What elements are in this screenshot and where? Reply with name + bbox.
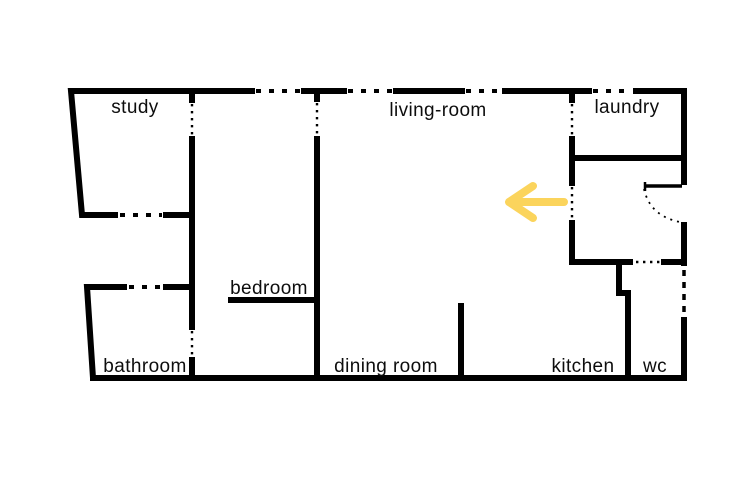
wall-entry-left-low <box>572 220 633 262</box>
room-label-bathroom: bathroom <box>103 356 186 377</box>
room-label-study: study <box>111 97 159 118</box>
entry-door-swing-arc <box>644 189 680 222</box>
room-label-living-room: living-room <box>389 100 486 121</box>
room-label-bedroom: bedroom <box>230 278 308 299</box>
door-dotted-openings <box>192 103 660 356</box>
room-label-dining-room: dining room <box>334 356 438 377</box>
room-labels: study living-room laundry bedroom bathro… <box>103 97 667 377</box>
wall-study-outline <box>71 91 255 215</box>
floor-plan-svg: study living-room laundry bedroom bathro… <box>0 0 750 500</box>
window-dashes <box>120 91 684 316</box>
floor-plan-image: study living-room laundry bedroom bathro… <box>0 0 750 500</box>
room-label-kitchen: kitchen <box>551 356 614 377</box>
solid-walls <box>71 88 687 381</box>
direction-arrow-left <box>509 186 564 218</box>
entry-door <box>644 182 682 222</box>
room-label-wc: wc <box>642 356 667 377</box>
room-label-laundry: laundry <box>594 97 659 118</box>
wall-kitchen-jog <box>619 259 628 378</box>
